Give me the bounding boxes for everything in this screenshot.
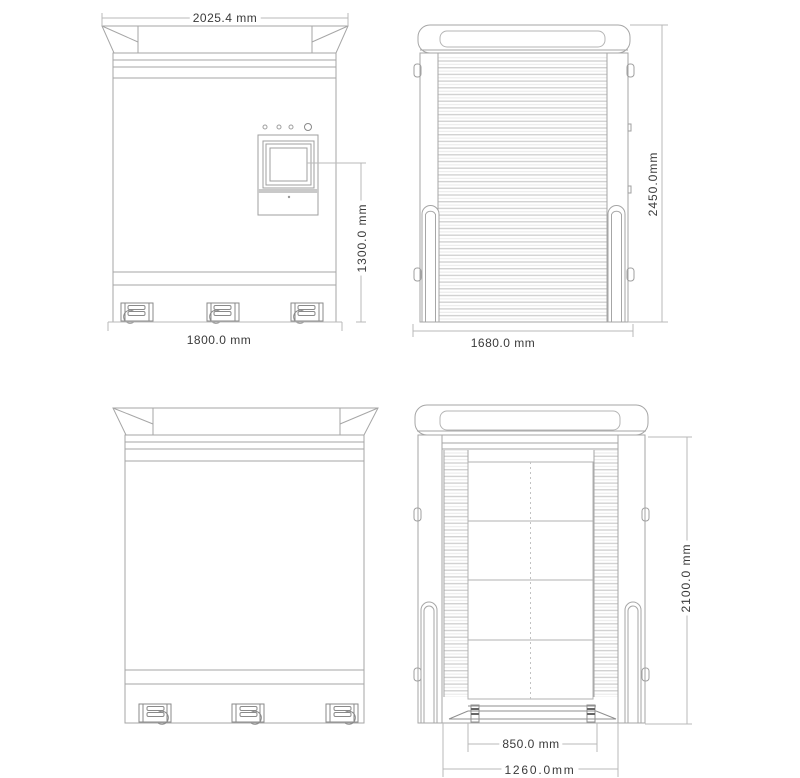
roof-canopy	[102, 26, 348, 53]
dim-front-base-width: 1800.0 mm	[184, 333, 255, 347]
caster	[232, 704, 264, 724]
cabinet-body	[125, 435, 364, 723]
caster	[121, 303, 153, 323]
dim-open-height: 2100.0 mm	[679, 540, 693, 615]
open-view	[414, 405, 692, 777]
roller-shutter	[438, 56, 607, 322]
dim-open-base-width: 1260.0mm	[501, 763, 578, 777]
dim-open-inner-width: 850.0 mm	[499, 737, 562, 751]
dim-side-base-width: 1680.0 mm	[468, 336, 539, 350]
guide-rail-left	[421, 602, 437, 723]
casters-rear	[139, 704, 358, 724]
guide-rail-right	[608, 206, 625, 323]
caster	[207, 303, 239, 323]
top-cap	[418, 25, 630, 53]
casters-front	[121, 303, 323, 323]
indicator-light	[263, 125, 267, 129]
loading-platform	[449, 705, 616, 722]
guide-rail-right	[625, 602, 641, 723]
latch	[628, 124, 631, 131]
indicator-light	[289, 125, 293, 129]
shutter-column-left	[444, 450, 468, 697]
cabinet-body	[418, 435, 645, 723]
side-view	[413, 25, 668, 337]
caster	[326, 704, 358, 724]
emergency-stop-button	[305, 124, 312, 131]
dim-front-screen-height: 1300.0 mm	[355, 200, 369, 275]
control-panel	[258, 124, 318, 216]
battery-rack	[468, 462, 593, 699]
cabinet-body	[420, 53, 628, 322]
front-dimension-lines	[102, 13, 366, 331]
roof-canopy	[113, 408, 378, 435]
front-view	[102, 13, 366, 331]
caster	[139, 704, 171, 724]
drawing-canvas: 2025.4 mm 1300.0 mm 1800.0 mm 1680.0 mm …	[0, 0, 800, 778]
technical-drawing	[0, 0, 800, 778]
dim-side-height: 2450.0mm	[646, 149, 660, 220]
caster	[291, 303, 323, 323]
latch	[628, 186, 631, 193]
top-cap	[415, 405, 648, 435]
indicator-light	[277, 125, 281, 129]
open-dimension-lines	[443, 437, 692, 777]
dim-front-top-width: 2025.4 mm	[190, 11, 261, 25]
rear-view	[113, 408, 378, 724]
guide-rail-left	[422, 206, 439, 323]
shutter-column-right	[594, 450, 618, 697]
